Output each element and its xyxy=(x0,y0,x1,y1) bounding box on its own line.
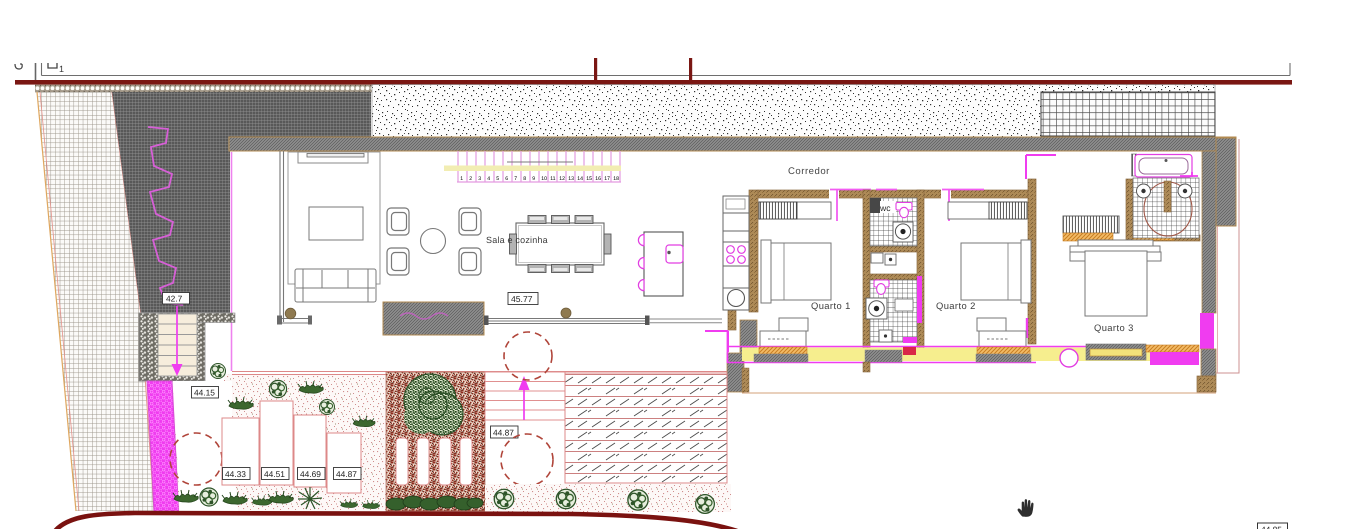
svg-text:Sala e cozinha: Sala e cozinha xyxy=(486,235,548,245)
svg-text:13: 13 xyxy=(568,176,574,182)
svg-text:4: 4 xyxy=(487,176,490,182)
svg-text:11: 11 xyxy=(550,176,555,182)
svg-text:44.85: 44.85 xyxy=(1261,525,1282,529)
svg-text:18: 18 xyxy=(613,176,619,182)
svg-text:44.51: 44.51 xyxy=(264,469,285,479)
svg-text:9: 9 xyxy=(532,176,535,182)
svg-text:6: 6 xyxy=(505,176,508,182)
svg-text:wc: wc xyxy=(879,203,891,213)
svg-text:Quarto 1: Quarto 1 xyxy=(811,300,851,311)
svg-text:3: 3 xyxy=(478,176,481,182)
svg-text:5: 5 xyxy=(496,176,499,182)
svg-text:44.33: 44.33 xyxy=(225,469,246,479)
svg-text:7: 7 xyxy=(514,176,517,182)
svg-text:12: 12 xyxy=(559,176,565,182)
svg-text:Quarto 3: Quarto 3 xyxy=(1094,322,1134,333)
svg-text:8: 8 xyxy=(523,176,526,182)
svg-text:44.87: 44.87 xyxy=(336,469,357,479)
svg-text:1: 1 xyxy=(460,176,463,182)
svg-text:44.87: 44.87 xyxy=(493,428,514,438)
svg-text:1: 1 xyxy=(59,64,64,74)
svg-text:44.15: 44.15 xyxy=(194,388,215,398)
svg-text:15: 15 xyxy=(586,176,592,182)
svg-text:10: 10 xyxy=(541,176,547,182)
svg-text:45.77: 45.77 xyxy=(511,294,533,304)
svg-text:Corredor: Corredor xyxy=(788,166,830,177)
svg-text:17: 17 xyxy=(604,176,610,182)
svg-text:16: 16 xyxy=(595,176,601,182)
svg-text:42.7: 42.7 xyxy=(166,294,183,304)
svg-text:2: 2 xyxy=(469,176,472,182)
svg-text:Quarto 2: Quarto 2 xyxy=(936,300,976,311)
svg-text:44.69: 44.69 xyxy=(300,469,321,479)
svg-text:14: 14 xyxy=(577,176,583,182)
